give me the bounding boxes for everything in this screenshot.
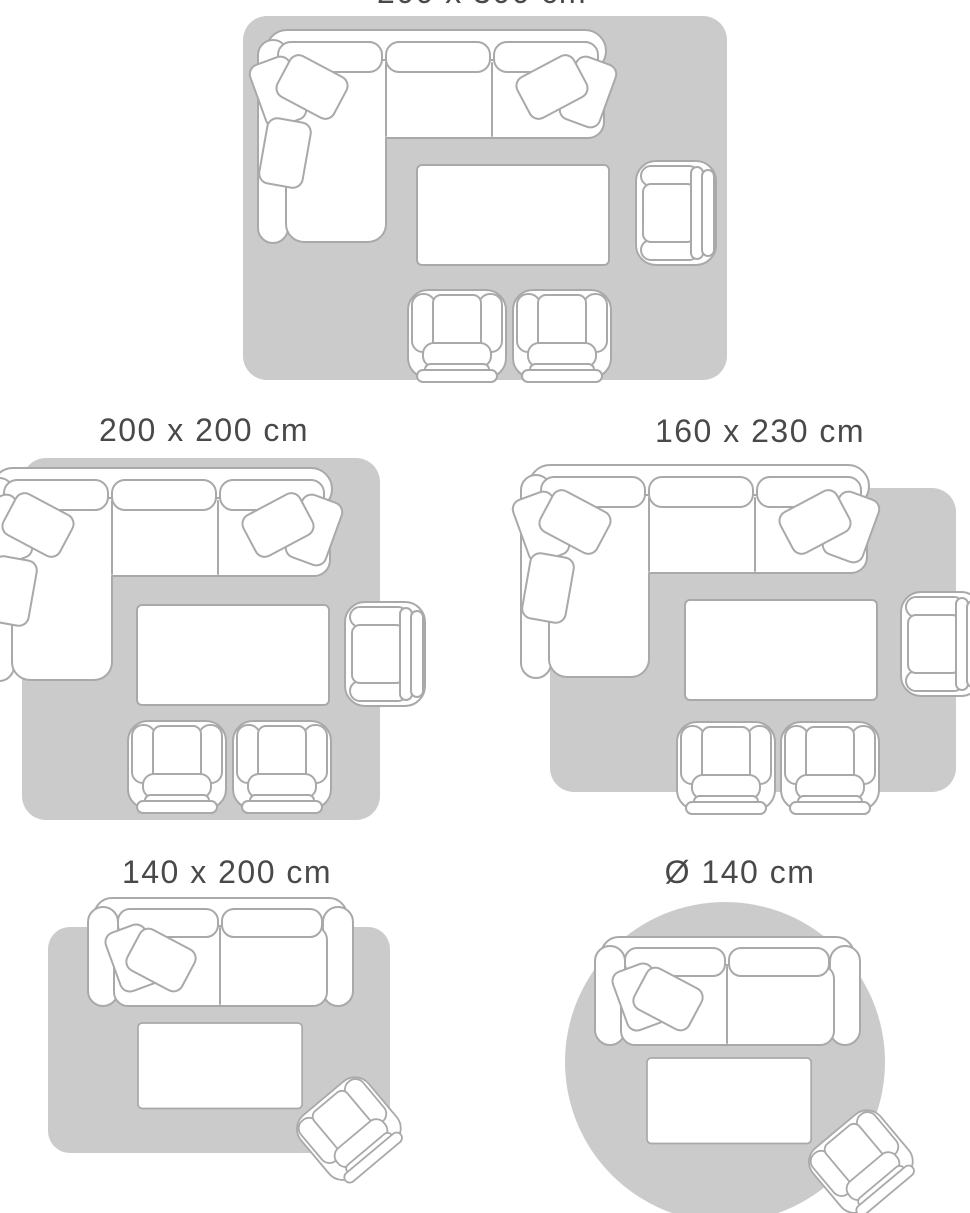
coffee-table <box>647 1058 811 1144</box>
layout-160x230 <box>510 465 970 814</box>
rug-size-guide: 200 x 300 cm 200 x 200 cm 160 x 230 cm 1… <box>0 0 970 1213</box>
armchair <box>345 602 425 706</box>
loveseat-sofa <box>88 898 353 1006</box>
coffee-table <box>685 600 877 700</box>
club-chair-left <box>677 722 775 814</box>
coffee-table <box>137 605 329 705</box>
layout-200x300 <box>243 16 727 382</box>
loveseat-sofa <box>595 937 860 1045</box>
coffee-table <box>417 165 609 265</box>
armchair <box>636 161 716 265</box>
club-chair-left <box>128 721 226 813</box>
layout-140x200 <box>48 898 410 1190</box>
layout-canvas <box>0 0 970 1213</box>
club-chair-right <box>233 721 331 813</box>
club-chair-left <box>408 290 506 382</box>
club-chair-right <box>781 722 879 814</box>
coffee-table <box>138 1023 302 1109</box>
layout-round-140 <box>565 902 922 1213</box>
club-chair-right <box>513 290 611 382</box>
armchair <box>901 592 970 696</box>
layout-200x200 <box>0 458 425 820</box>
